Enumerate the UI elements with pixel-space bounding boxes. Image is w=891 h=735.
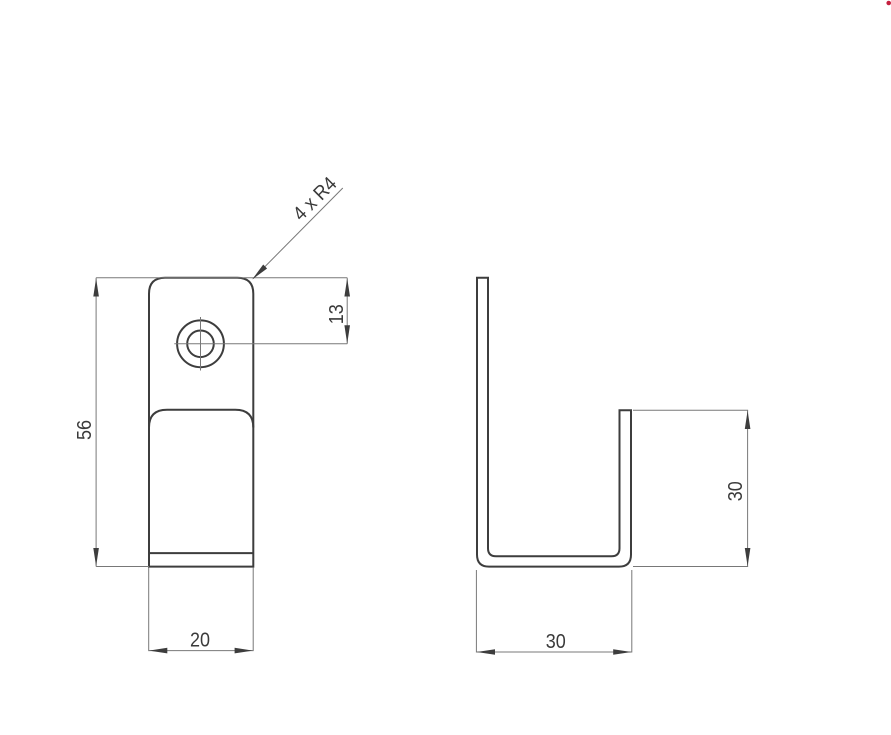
svg-text:56: 56 [74, 420, 96, 440]
svg-text:20: 20 [190, 630, 210, 652]
svg-text:30: 30 [546, 631, 566, 653]
svg-text:30: 30 [725, 481, 747, 501]
svg-text:13: 13 [326, 304, 348, 324]
